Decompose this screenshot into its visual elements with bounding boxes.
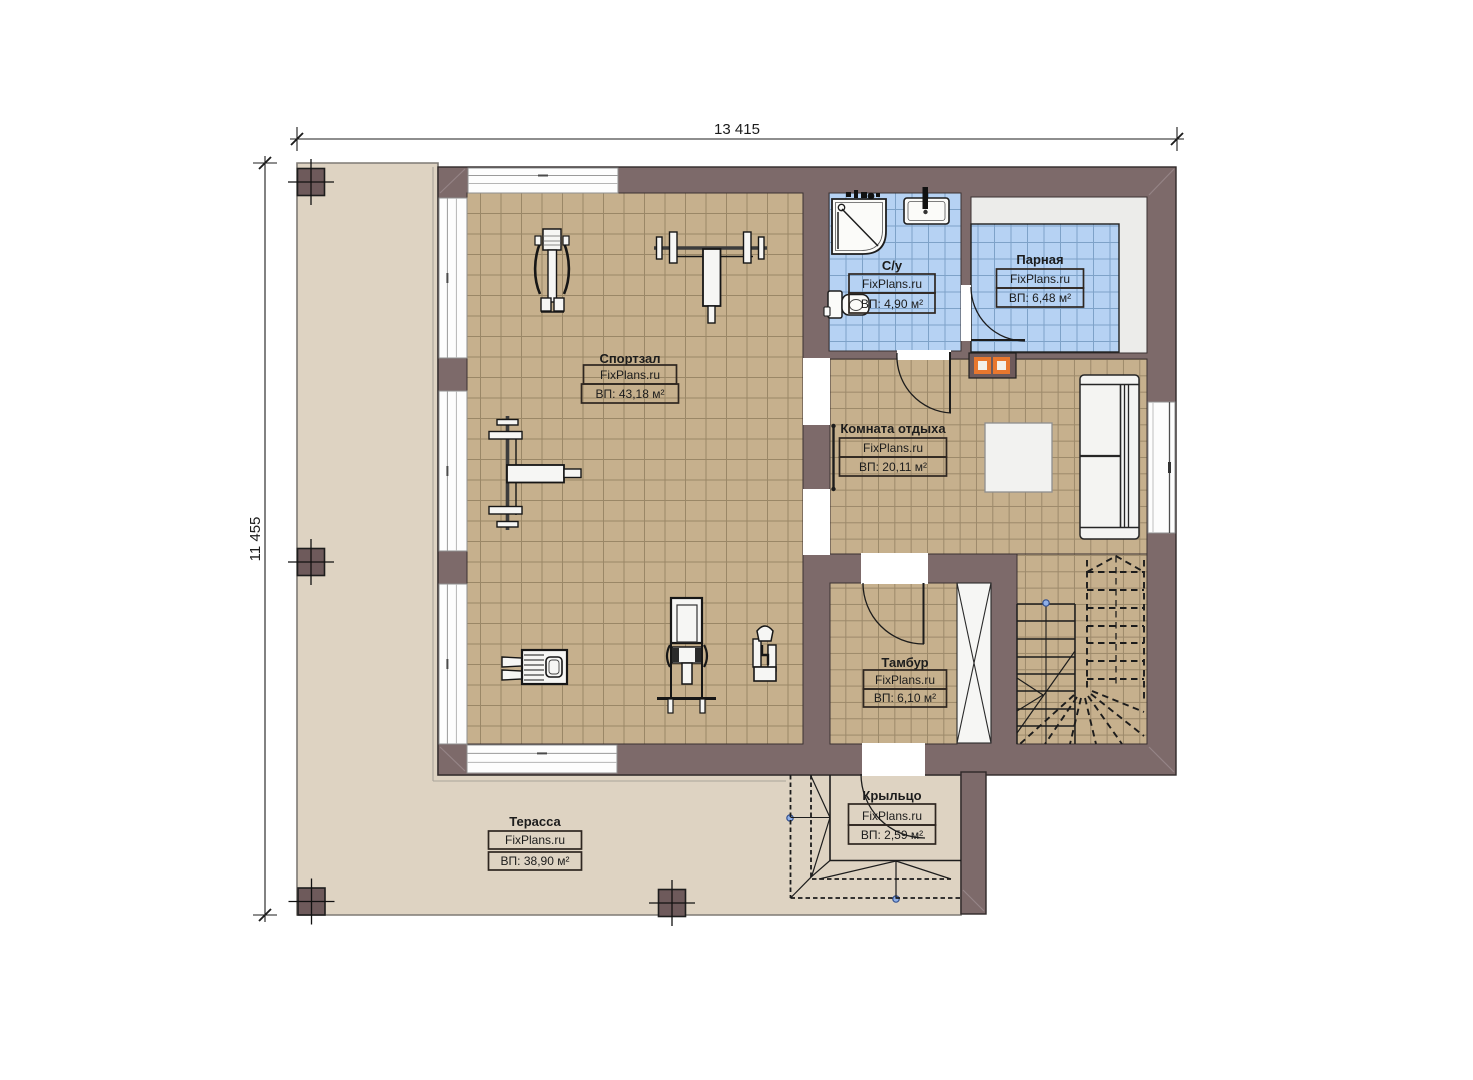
svg-text:ВП: 43,18 м²: ВП: 43,18 м² xyxy=(596,387,665,401)
svg-text:FixPlans.ru: FixPlans.ru xyxy=(863,441,923,455)
svg-text:С/у: С/у xyxy=(882,258,903,273)
svg-text:FixPlans.ru: FixPlans.ru xyxy=(600,368,660,382)
svg-text:ВП: 2,59 м²: ВП: 2,59 м² xyxy=(861,828,923,842)
svg-text:13 415: 13 415 xyxy=(714,121,760,138)
svg-text:FixPlans.ru: FixPlans.ru xyxy=(505,833,565,847)
svg-text:Крыльцо: Крыльцо xyxy=(862,788,921,803)
svg-text:Тамбур: Тамбур xyxy=(881,655,928,670)
svg-text:FixPlans.ru: FixPlans.ru xyxy=(1010,272,1070,286)
svg-text:ВП: 38,90 м²: ВП: 38,90 м² xyxy=(501,854,570,868)
svg-text:Комната отдыха: Комната отдыха xyxy=(840,421,946,436)
svg-text:Терасса: Терасса xyxy=(509,814,561,829)
svg-text:ВП: 20,11 м²: ВП: 20,11 м² xyxy=(859,460,927,474)
svg-text:11 455: 11 455 xyxy=(247,517,264,562)
svg-text:ВП: 4,90 м²: ВП: 4,90 м² xyxy=(861,297,923,311)
svg-text:FixPlans.ru: FixPlans.ru xyxy=(862,809,922,823)
svg-text:FixPlans.ru: FixPlans.ru xyxy=(862,277,922,291)
svg-text:ВП: 6,10 м²: ВП: 6,10 м² xyxy=(874,691,936,705)
svg-text:FixPlans.ru: FixPlans.ru xyxy=(875,673,935,687)
svg-text:Парная: Парная xyxy=(1016,252,1063,267)
svg-text:Спортзал: Спортзал xyxy=(599,351,660,366)
svg-text:ВП: 6,48 м²: ВП: 6,48 м² xyxy=(1009,291,1071,305)
